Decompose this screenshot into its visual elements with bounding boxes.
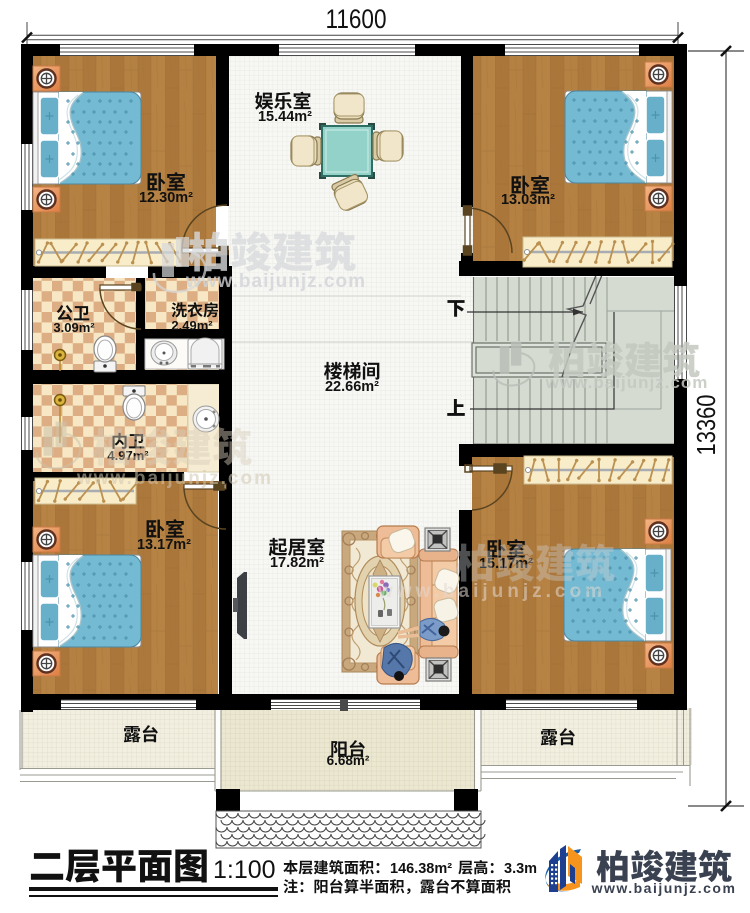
- svg-text:www.baijunjz.com: www.baijunjz.com: [545, 373, 709, 392]
- svg-text:www.baijunjz.com: www.baijunjz.com: [377, 581, 606, 602]
- svg-text:www.baijunjz.com: www.baijunjz.com: [185, 271, 366, 292]
- svg-text:www.baijunjz.com: www.baijunjz.com: [591, 880, 737, 896]
- svg-text:3.3m: 3.3m: [504, 861, 537, 877]
- svg-text:www.baijunjz.com: www.baijunjz.com: [76, 468, 273, 489]
- svg-text:15.44m²: 15.44m²: [258, 109, 312, 125]
- svg-text:22.66m²: 22.66m²: [325, 379, 379, 395]
- svg-text:13360: 13360: [691, 395, 721, 456]
- svg-text:3.09m²: 3.09m²: [53, 320, 95, 335]
- svg-text:6.68m²: 6.68m²: [327, 753, 370, 768]
- svg-text:12.30m²: 12.30m²: [139, 190, 193, 206]
- svg-text:13.17m²: 13.17m²: [137, 537, 191, 553]
- svg-text:1:100: 1:100: [213, 856, 276, 884]
- svg-text:2.49m²: 2.49m²: [171, 318, 213, 333]
- svg-text:146.38m²: 146.38m²: [390, 861, 452, 877]
- svg-text:11600: 11600: [326, 4, 387, 34]
- svg-text:17.82m²: 17.82m²: [270, 555, 324, 571]
- svg-text:13.03m²: 13.03m²: [501, 192, 555, 208]
